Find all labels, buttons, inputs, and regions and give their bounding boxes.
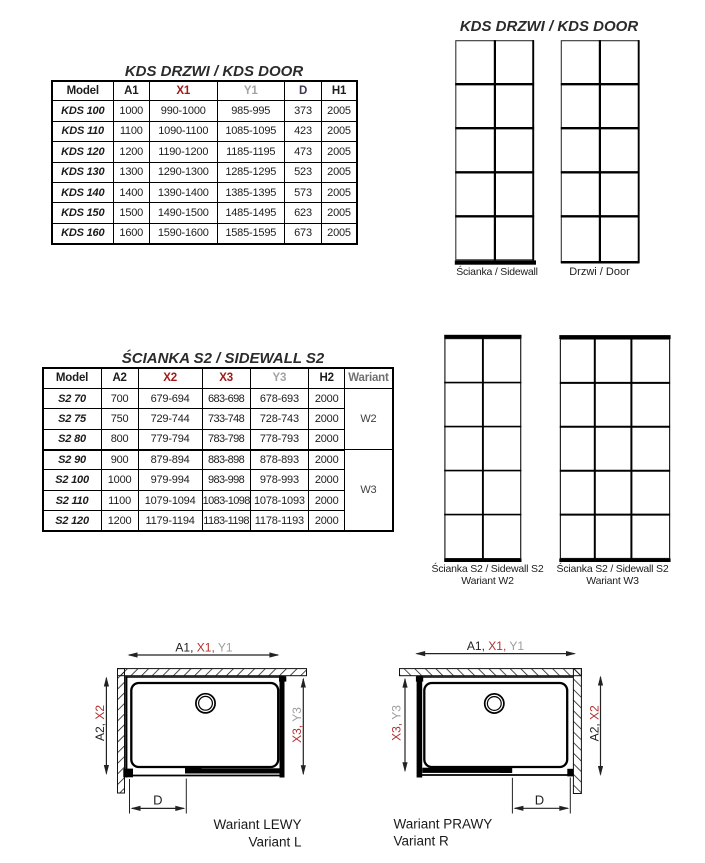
svg-text:A2, X2: A2, X2	[587, 705, 601, 741]
svg-text:D: D	[153, 793, 162, 808]
svg-text:X3, Y3: X3, Y3	[390, 705, 404, 741]
svg-text:Wariant PRAWY: Wariant PRAWY	[394, 817, 493, 832]
svg-text:Variant L: Variant L	[248, 834, 302, 849]
svg-text:X3, Y3: X3, Y3	[290, 707, 304, 743]
svg-text:A2, X2: A2, X2	[93, 705, 107, 741]
svg-text:Variant R: Variant R	[394, 834, 450, 849]
svg-text:Wariant LEWY: Wariant LEWY	[213, 817, 301, 832]
svg-text:A1, X1, Y1: A1, X1, Y1	[175, 641, 233, 655]
svg-text:D: D	[535, 793, 544, 808]
svg-text:A1, X1, Y1: A1, X1, Y1	[467, 639, 525, 653]
